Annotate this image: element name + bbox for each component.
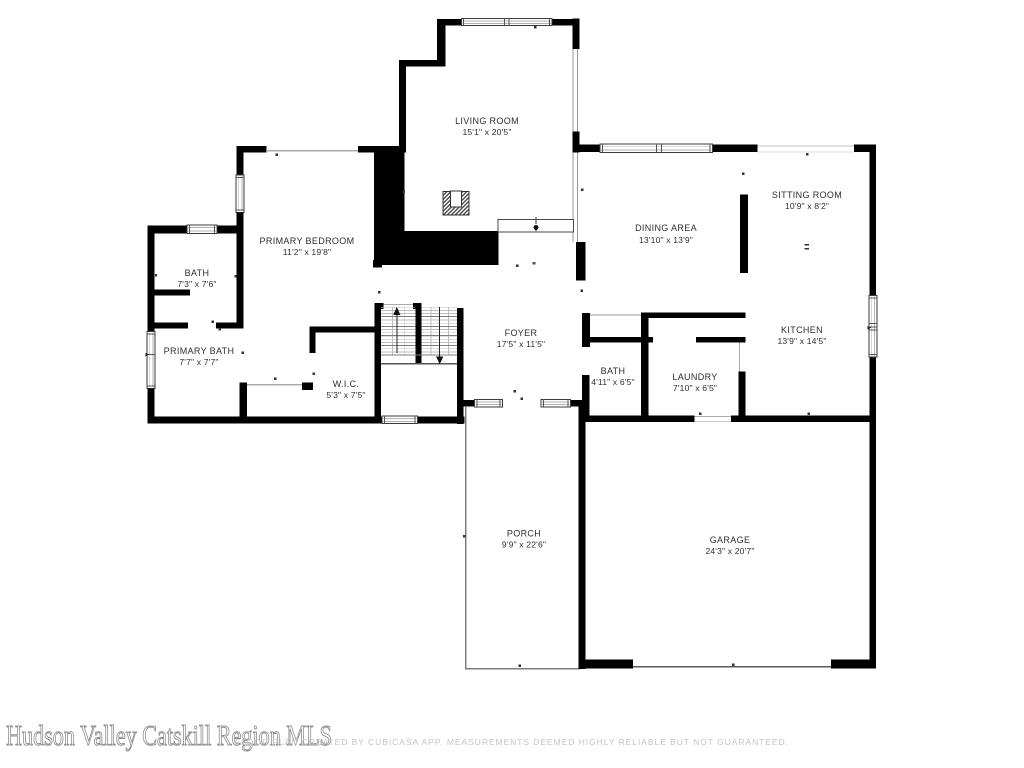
svg-text:11'2" x 19'8": 11'2" x 19'8" [283, 247, 331, 257]
svg-text:LIVING ROOM: LIVING ROOM [455, 116, 519, 126]
svg-text:PORCH: PORCH [507, 529, 541, 539]
svg-text:KITCHEN: KITCHEN [781, 325, 823, 335]
svg-text:GARAGE: GARAGE [710, 535, 751, 545]
svg-text:SITTING ROOM: SITTING ROOM [772, 190, 842, 200]
svg-text:15'1" x 20'5": 15'1" x 20'5" [462, 127, 511, 137]
svg-text:PRIMARY BATH: PRIMARY BATH [164, 346, 235, 356]
svg-text:FOYER: FOYER [505, 328, 538, 338]
svg-text:W.I.C.: W.I.C. [333, 379, 360, 389]
svg-text:13'9" x 14'5": 13'9" x 14'5" [777, 336, 826, 346]
svg-text:4'11" x 6'5": 4'11" x 6'5" [591, 377, 635, 387]
svg-text:5'3" x 7'5": 5'3" x 7'5" [326, 390, 365, 400]
svg-text:LAUNDRY: LAUNDRY [672, 372, 717, 382]
svg-text:10'9" x 8'2": 10'9" x 8'2" [785, 201, 829, 211]
svg-text:13'10" x 13'9": 13'10" x 13'9" [639, 235, 693, 245]
svg-text:DINING AREA: DINING AREA [635, 223, 697, 233]
svg-text:7'10" x 6'5": 7'10" x 6'5" [673, 383, 717, 393]
svg-text:17'5" x 11'5": 17'5" x 11'5" [497, 339, 545, 349]
svg-text:FLOOR PLAN CREATED BY CUBICASA: FLOOR PLAN CREATED BY CUBICASA APP. MEAS… [235, 737, 789, 747]
svg-text:PRIMARY BEDROOM: PRIMARY BEDROOM [260, 236, 355, 246]
svg-text:7'7" x 7'7": 7'7" x 7'7" [179, 357, 218, 367]
svg-text:24'3" x 20'7": 24'3" x 20'7" [705, 546, 754, 556]
svg-text:9'9" x 22'6": 9'9" x 22'6" [502, 540, 546, 550]
svg-text:7'3" x 7'6": 7'3" x 7'6" [177, 279, 216, 289]
svg-text:BATH: BATH [185, 268, 210, 278]
svg-text:BATH: BATH [601, 366, 626, 376]
